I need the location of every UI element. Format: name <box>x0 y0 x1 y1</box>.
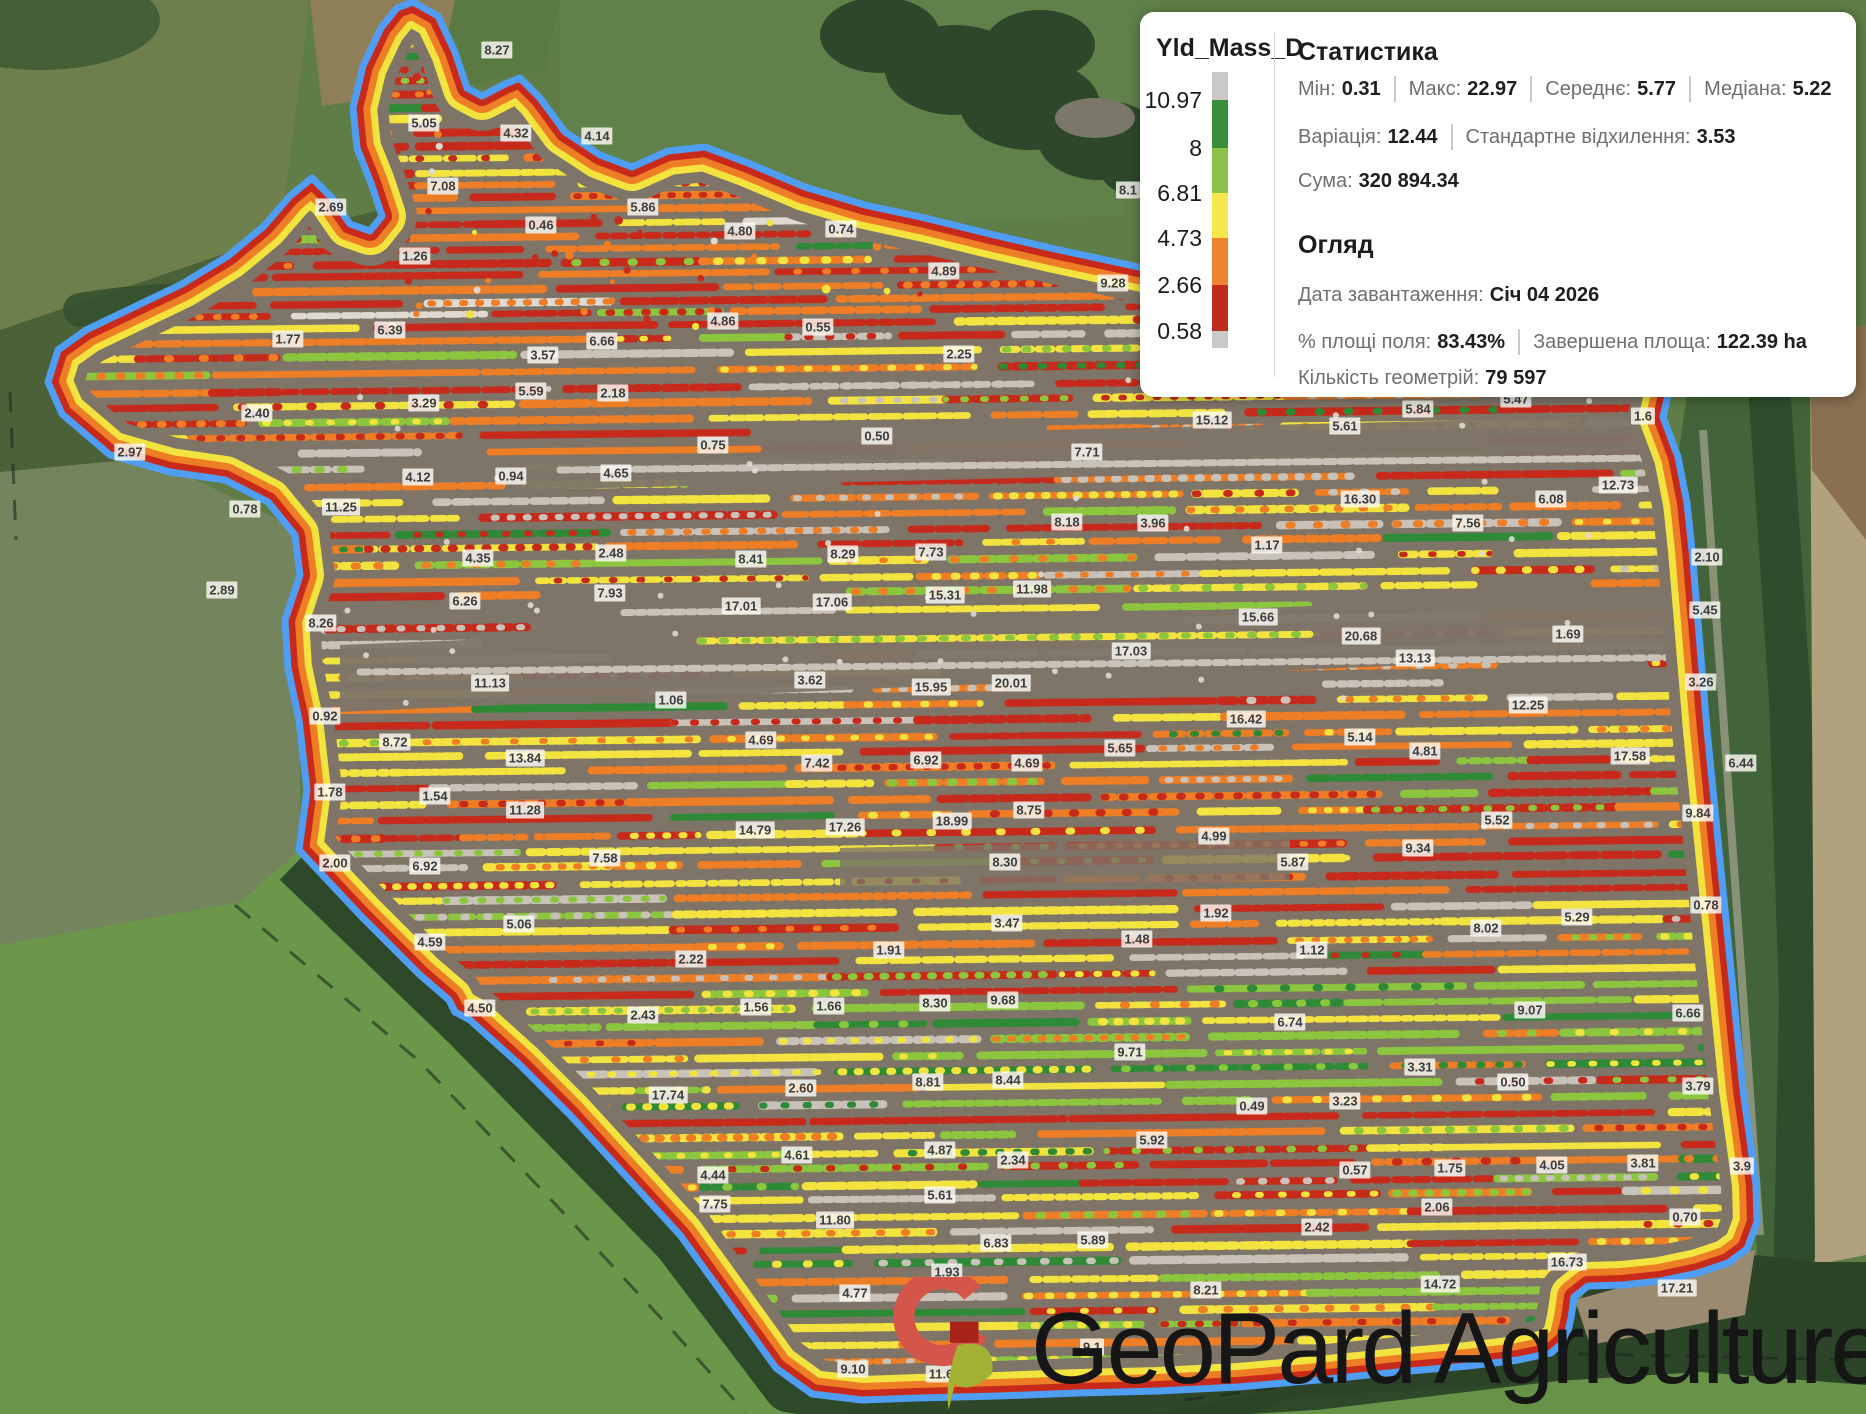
yield-value-label: 20.68 <box>1342 628 1381 645</box>
yield-value-label: 1.92 <box>1200 905 1231 922</box>
yield-value-label: 3.26 <box>1685 674 1716 691</box>
yield-value-label: 2.42 <box>1301 1219 1332 1236</box>
yield-value-label: 9.71 <box>1114 1044 1145 1061</box>
stats-line-3: Сума:320 894.34 <box>1298 170 1840 193</box>
stats-title: Статистика <box>1298 38 1438 67</box>
yield-value-label: 6.74 <box>1274 1014 1305 1031</box>
stats-line-2: Варіація:12.44Стандартне відхилення:3.53 <box>1298 124 1840 150</box>
yield-value-label: 8.26 <box>305 615 336 632</box>
yield-value-label: 9.34 <box>1402 840 1433 857</box>
yield-value-label: 4.59 <box>414 934 445 951</box>
yield-value-label: 5.52 <box>1481 812 1512 829</box>
yield-value-label: 12.25 <box>1509 697 1548 714</box>
yield-value-label: 15.31 <box>926 587 965 604</box>
yield-value-label: 5.89 <box>1077 1232 1108 1249</box>
yield-value-label: 11.98 <box>1013 581 1051 598</box>
yield-value-label: 8.27 <box>481 42 512 59</box>
yield-value-label: 18.99 <box>933 813 972 830</box>
yield-value-label: 8.81 <box>912 1074 943 1091</box>
yield-value-label: 4.69 <box>1011 755 1042 772</box>
yield-value-label: 11.25 <box>322 499 360 516</box>
yield-value-label: 17.03 <box>1112 643 1151 660</box>
yield-value-label: 2.40 <box>241 405 272 422</box>
yield-value-label: 4.50 <box>464 1000 495 1017</box>
yield-value-label: 8.1 <box>1116 182 1140 199</box>
yield-value-label: 2.34 <box>997 1152 1028 1169</box>
yield-value-label: 9.10 <box>837 1361 868 1378</box>
yield-value-label: 1.69 <box>1552 626 1583 643</box>
yield-value-label: 5.92 <box>1136 1132 1167 1149</box>
yield-value-label: 7.56 <box>1452 515 1483 532</box>
yield-value-label: 5.59 <box>515 383 546 400</box>
yield-value-label: 1.54 <box>419 788 450 805</box>
yield-value-label: 7.75 <box>699 1196 730 1213</box>
yield-value-label: 4.77 <box>839 1285 870 1302</box>
yield-value-label: 1.17 <box>1251 537 1282 554</box>
yield-value-label: 1.77 <box>272 331 303 348</box>
yield-value-label: 0.70 <box>1669 1209 1700 1226</box>
yield-value-label: 7.58 <box>589 850 620 867</box>
yield-value-label: 6.66 <box>1672 1005 1703 1022</box>
yield-value-label: 7.71 <box>1071 444 1102 461</box>
yield-map-screen: 8.275.054.324.142.697.085.860.464.800.74… <box>0 0 1866 1414</box>
yield-value-label: 16.30 <box>1341 491 1380 508</box>
yield-value-label: 6.92 <box>910 752 941 769</box>
yield-value-label: 2.89 <box>206 582 237 599</box>
yield-value-label: 1.78 <box>314 784 345 801</box>
yield-value-label: 17.26 <box>826 819 865 836</box>
yield-value-label: 8.30 <box>919 995 950 1012</box>
yield-value-label: 20.01 <box>992 675 1031 692</box>
yield-value-label: 2.97 <box>114 444 145 461</box>
yield-value-label: 0.78 <box>1690 897 1721 914</box>
yield-value-label: 7.08 <box>427 178 458 195</box>
yield-value-label: 0.50 <box>1497 1074 1528 1091</box>
yield-value-label: 4.69 <box>745 732 776 749</box>
yield-value-label: 4.87 <box>924 1142 955 1159</box>
yield-value-label: 2.06 <box>1421 1199 1452 1216</box>
yield-value-label: 4.81 <box>1409 743 1440 760</box>
yield-value-label: 3.96 <box>1137 515 1168 532</box>
yield-value-label: 5.61 <box>1329 418 1360 435</box>
yield-value-label: 6.26 <box>449 593 480 610</box>
yield-value-label: 4.32 <box>500 125 531 142</box>
yield-value-label: 13.13 <box>1396 650 1435 667</box>
yield-value-label: 12.73 <box>1599 477 1638 494</box>
yield-value-label: 7.42 <box>801 755 832 772</box>
yield-value-label: 3.62 <box>794 672 825 689</box>
yield-value-label: 0.92 <box>309 708 340 725</box>
yield-value-label: 0.75 <box>697 437 728 454</box>
yield-value-label: 7.73 <box>915 544 946 561</box>
yield-value-label: 3.23 <box>1329 1093 1360 1110</box>
yield-value-label: 2.22 <box>675 951 706 968</box>
overview-line-2: % площі поля:83.43%Завершена площа:122.3… <box>1298 329 1840 355</box>
yield-value-label: 11.28 <box>506 802 544 819</box>
yield-value-label: 2.69 <box>315 199 346 216</box>
yield-value-label: 1.48 <box>1121 931 1152 948</box>
yield-value-label: 8.29 <box>827 546 858 563</box>
yield-value-label: 9.1 <box>1080 1339 1104 1356</box>
yield-value-label: 16.73 <box>1548 1254 1587 1271</box>
legend-colorbar <box>1212 72 1228 348</box>
yield-value-label: 0.50 <box>861 428 892 445</box>
yield-value-label: 4.12 <box>402 469 433 486</box>
yield-value-label: 8.72 <box>379 734 410 751</box>
yield-value-label: 0.57 <box>1339 1162 1370 1179</box>
yield-value-label: 4.86 <box>707 313 738 330</box>
yield-value-label: 11.6 <box>926 1366 957 1383</box>
yield-value-label: 16.42 <box>1227 711 1266 728</box>
yield-value-label: 8.75 <box>1013 802 1044 819</box>
yield-value-label: 9.07 <box>1514 1002 1545 1019</box>
yield-value-label: 8.21 <box>1190 1282 1221 1299</box>
yield-value-label: 6.44 <box>1725 755 1756 772</box>
yield-value-label: 2.18 <box>597 385 628 402</box>
yield-value-label: 1.6 <box>1631 408 1655 425</box>
yield-value-label: 5.05 <box>408 115 439 132</box>
yield-value-label: 2.25 <box>943 346 974 363</box>
yield-value-label: 5.45 <box>1689 602 1720 619</box>
yield-value-label: 5.29 <box>1561 909 1592 926</box>
stats-line-1: Мін:0.31Макс:22.97Середнє:5.77Медіана:5.… <box>1298 76 1840 102</box>
yield-value-label: 2.00 <box>319 855 350 872</box>
stats-panel: Yld_Mass_D 10.9786.814.732.660.58 Статис… <box>1140 12 1856 397</box>
yield-value-label: 2.43 <box>627 1007 658 1024</box>
overview-title: Огляд <box>1298 231 1374 260</box>
yield-value-label: 3.81 <box>1627 1155 1658 1172</box>
yield-value-label: 2.48 <box>595 545 626 562</box>
yield-value-label: 3.31 <box>1404 1059 1435 1076</box>
yield-value-label: 1.56 <box>740 999 771 1016</box>
yield-value-label: 8.18 <box>1051 514 1082 531</box>
yield-value-label: 3.57 <box>527 347 558 364</box>
yield-value-label: 17.74 <box>649 1087 688 1104</box>
yield-value-label: 1.26 <box>399 248 430 265</box>
yield-value-label: 0.46 <box>525 217 556 234</box>
yield-value-label: 2.10 <box>1691 549 1722 566</box>
yield-value-label: 6.08 <box>1535 491 1566 508</box>
overview-line-3: Кількість геометрій:79 597 <box>1298 367 1840 390</box>
yield-value-label: 6.83 <box>980 1235 1011 1252</box>
yield-value-label: 5.61 <box>924 1187 955 1204</box>
yield-value-label: 1.12 <box>1296 942 1327 959</box>
yield-value-label: 14.72 <box>1421 1276 1460 1293</box>
yield-value-label: 6.92 <box>409 858 440 875</box>
yield-value-label: 8.02 <box>1470 920 1501 937</box>
yield-value-label: 6.39 <box>374 322 405 339</box>
legend-title: Yld_Mass_D <box>1156 34 1303 63</box>
yield-value-label: 1.93 <box>931 1264 962 1281</box>
yield-value-label: 2.60 <box>785 1080 816 1097</box>
yield-value-label: 17.58 <box>1611 748 1650 765</box>
yield-value-label: 8.41 <box>735 551 766 568</box>
yield-value-label: 11.80 <box>816 1212 854 1229</box>
yield-value-label: 6.66 <box>586 333 617 350</box>
yield-value-label: 4.44 <box>697 1167 728 1184</box>
yield-value-label: 0.55 <box>802 319 833 336</box>
yield-value-label: 17.01 <box>722 598 761 615</box>
yield-value-label: 3.29 <box>408 395 439 412</box>
yield-value-label: 0.78 <box>229 501 260 518</box>
yield-value-label: 9.28 <box>1097 275 1128 292</box>
yield-value-label: 17.21 <box>1658 1280 1697 1297</box>
yield-value-label: 5.14 <box>1344 729 1375 746</box>
yield-value-label: 4.65 <box>600 465 631 482</box>
yield-value-label: 4.89 <box>928 263 959 280</box>
yield-value-label: 4.14 <box>581 128 612 145</box>
yield-value-label: 4.61 <box>781 1147 812 1164</box>
yield-value-label: 5.65 <box>1104 740 1135 757</box>
yield-value-label: 11.13 <box>471 675 509 692</box>
yield-value-label: 15.66 <box>1239 609 1278 626</box>
yield-value-label: 0.74 <box>825 221 856 238</box>
yield-value-label: 15.12 <box>1193 412 1232 429</box>
yield-value-label: 4.05 <box>1536 1157 1567 1174</box>
yield-value-label: 14.79 <box>736 822 775 839</box>
yield-value-label: 17.06 <box>813 594 852 611</box>
yield-value-label: 5.86 <box>627 199 658 216</box>
yield-value-label: 1.06 <box>655 692 686 709</box>
yield-value-label: 0.49 <box>1236 1098 1267 1115</box>
yield-value-label: 13.84 <box>506 750 545 767</box>
yield-value-label: 0.94 <box>495 468 526 485</box>
yield-value-label: 4.80 <box>724 223 755 240</box>
yield-value-label: 1.91 <box>873 942 904 959</box>
yield-value-label: 3.9 <box>1730 1158 1754 1175</box>
panel-divider <box>1274 32 1275 377</box>
yield-value-label: 8.44 <box>992 1072 1023 1089</box>
yield-value-label: 9.84 <box>1682 805 1713 822</box>
yield-value-label: 3.79 <box>1682 1078 1713 1095</box>
yield-value-label: 9.68 <box>987 992 1018 1009</box>
yield-value-label: 4.99 <box>1198 828 1229 845</box>
yield-value-label: 1.66 <box>813 998 844 1015</box>
yield-value-label: 1.75 <box>1434 1160 1465 1177</box>
yield-value-label: 15.95 <box>912 679 951 696</box>
yield-value-label: 5.06 <box>503 916 534 933</box>
yield-value-label: 7.93 <box>594 585 625 602</box>
yield-value-label: 4.35 <box>462 550 493 567</box>
yield-value-label: 3.47 <box>991 915 1022 932</box>
yield-value-label: 5.84 <box>1402 401 1433 418</box>
yield-value-label: 8.30 <box>989 854 1020 871</box>
overview-line-1: Дата завантаження:Січ 04 2026 <box>1298 284 1840 307</box>
yield-value-label: 5.87 <box>1277 854 1308 871</box>
